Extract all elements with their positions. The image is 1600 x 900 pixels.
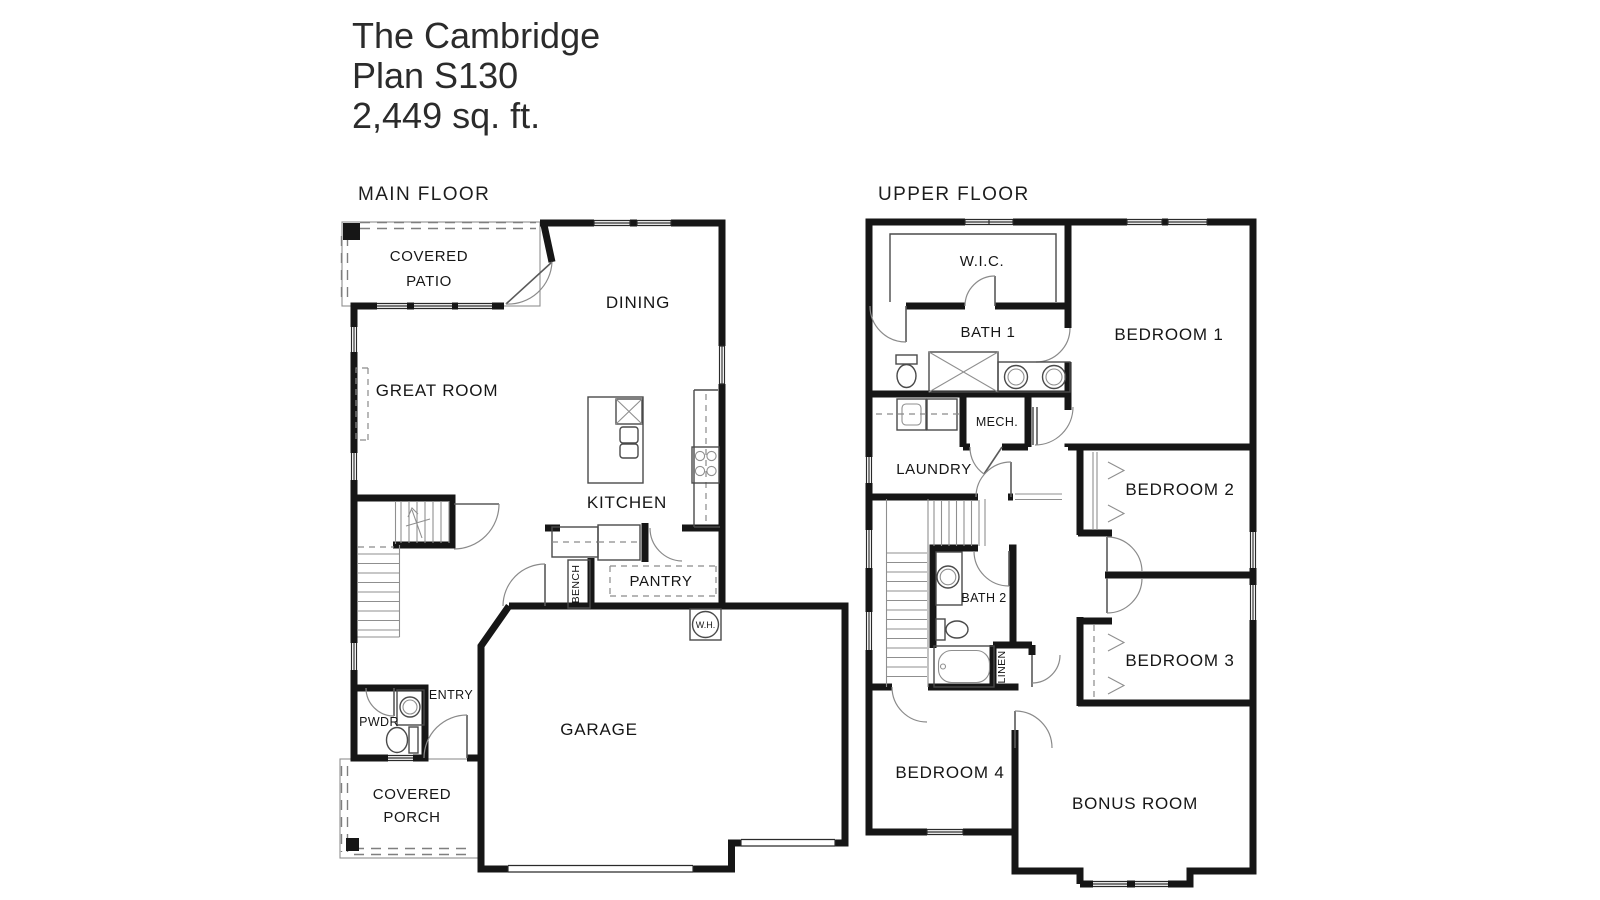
bath1-fixtures [896,352,1070,392]
room-label-garage: GARAGE [560,720,638,739]
plan-number: Plan S130 [352,55,518,96]
room-label-bath2: BATH 2 [961,591,1006,605]
bath2-door-arc [974,551,1009,586]
room-label-linen: LINEN [996,651,1008,684]
window [927,829,963,836]
stair-walls [354,495,455,549]
room-label-mech: MECH. [976,415,1018,429]
bed2-closet-walls [1078,447,1112,535]
front-door-arc [424,715,467,758]
porch-post [346,838,359,851]
title-block: The Cambridge Plan S130 2,449 sq. ft. [352,15,600,136]
stair-treads-lower [887,553,927,677]
garage-doors [508,840,835,873]
bath2-fixtures [934,552,994,687]
media-niche [356,368,368,440]
water-heater-label: W.H. [696,620,716,630]
hall-door-arc [1035,407,1073,445]
room-label-great-room: GREAT ROOM [376,381,499,400]
main-floor-plan: MAIN FLOOR [340,184,849,873]
bed2-closet-chevrons [1108,462,1124,522]
bed4-bottom-wall [866,730,1019,875]
room-label-covered-patio: PATIO [406,273,452,290]
room-label-bedroom3: BEDROOM 3 [1125,651,1234,670]
window [351,643,358,670]
window [1250,585,1257,620]
patio-chamfer-wall [544,225,552,262]
mech-door-leaf [984,447,1002,474]
room-label-bedroom4: BEDROOM 4 [895,763,1004,782]
bed3-door-arc [1107,578,1142,613]
floor-plan-canvas: The Cambridge Plan S130 2,449 sq. ft. MA… [0,0,1600,900]
sink-inner [1046,369,1062,385]
room-label-laundry: LAUNDRY [896,461,972,478]
window [866,530,873,568]
room-label-entry: ENTRY [429,688,473,702]
main-stairs [358,501,450,637]
island-sink-icon [620,427,638,443]
upper-floor-label: UPPER FLOOR [878,184,1030,205]
room-label-kitchen: KITCHEN [587,493,667,512]
toilet-icon [896,355,917,388]
sink-inner [940,569,956,585]
room-label-bedroom2: BEDROOM 2 [1125,480,1234,499]
garage-left-walls [481,606,845,869]
window [965,219,1013,226]
window [1168,219,1207,226]
stair-door-arc [454,504,499,549]
window [414,303,452,310]
laundry-door-arc [976,462,1011,497]
pantry-door-arc [650,528,682,561]
room-label-covered-porch: COVERED [373,786,451,803]
window [866,612,873,650]
window [866,457,873,483]
upper-floor-plan: UPPER FLOOR [866,184,1257,888]
bath1-door-arc [870,306,906,342]
room-label-bench: BENCH [570,565,582,604]
room-label-bath1: BATH 1 [960,324,1015,341]
window [388,755,413,762]
window [1135,881,1168,888]
bed2-closet-track [1093,452,1097,529]
hall-door-leaf [1033,407,1037,445]
plan-name: The Cambridge [352,15,600,56]
hall-door-arc [503,564,545,606]
sink-inner [1008,369,1024,385]
bath1-inner-door-arc [1036,328,1070,362]
room-label-covered-patio: COVERED [390,248,468,265]
main-floor-label: MAIN FLOOR [358,184,490,205]
garage-door-opening [508,866,693,873]
window [594,220,630,227]
stair-treads-lower [358,545,400,637]
toilet-icon [387,727,419,753]
window [351,327,358,352]
stair-treads-upper [934,500,979,546]
stair-railing [1015,494,1062,500]
island-sink-icon [620,444,638,458]
bed2-door-arc [1107,537,1142,572]
bed1-bottom-wall [1068,444,1253,448]
window [637,220,671,227]
bed3-closet-walls [1078,617,1112,706]
window [377,303,407,310]
patio-post [343,223,360,240]
room-label-pantry: PANTRY [629,573,692,590]
window [1250,532,1257,568]
window [1127,219,1162,226]
bed3-closet-chevrons [1108,634,1124,694]
powder-door-arc [366,688,394,716]
bonus-bottom-wall [1012,868,1257,888]
bed4-door-arc [892,687,927,722]
window [351,453,358,480]
laundry-fixtures [876,399,960,430]
bathtub-icon [934,646,994,687]
sink-inner [403,700,417,714]
mech-door-arc [970,447,984,474]
shower-icon [929,352,998,392]
plan-sqft: 2,449 sq. ft. [352,95,540,136]
room-label-covered-porch: PORCH [383,809,440,826]
toilet-icon [936,619,968,640]
main-walls [351,220,849,873]
wic-door-arc [965,276,995,306]
room-label-powder: PWDR [359,715,399,729]
stair-direction-arrow [406,508,430,538]
room-label-bonus: BONUS ROOM [1072,794,1198,813]
room-label-dining: DINING [606,293,670,312]
garage-right-walls [693,603,849,873]
water-heater-icon: W.H. [690,609,721,640]
window [1093,881,1127,888]
bonus-door-arc [1015,711,1052,748]
window [719,346,726,384]
room-label-bedroom1: BEDROOM 1 [1114,325,1223,344]
island-cooktop-x [616,399,642,424]
linen-door-arc [1032,655,1060,683]
window [458,303,492,310]
garage-door-opening [741,840,835,847]
upper-room-labels: W.I.C. BATH 1 BEDROOM 1 MECH. LAUNDRY BE… [895,253,1234,813]
room-label-wic: W.I.C. [960,253,1004,270]
